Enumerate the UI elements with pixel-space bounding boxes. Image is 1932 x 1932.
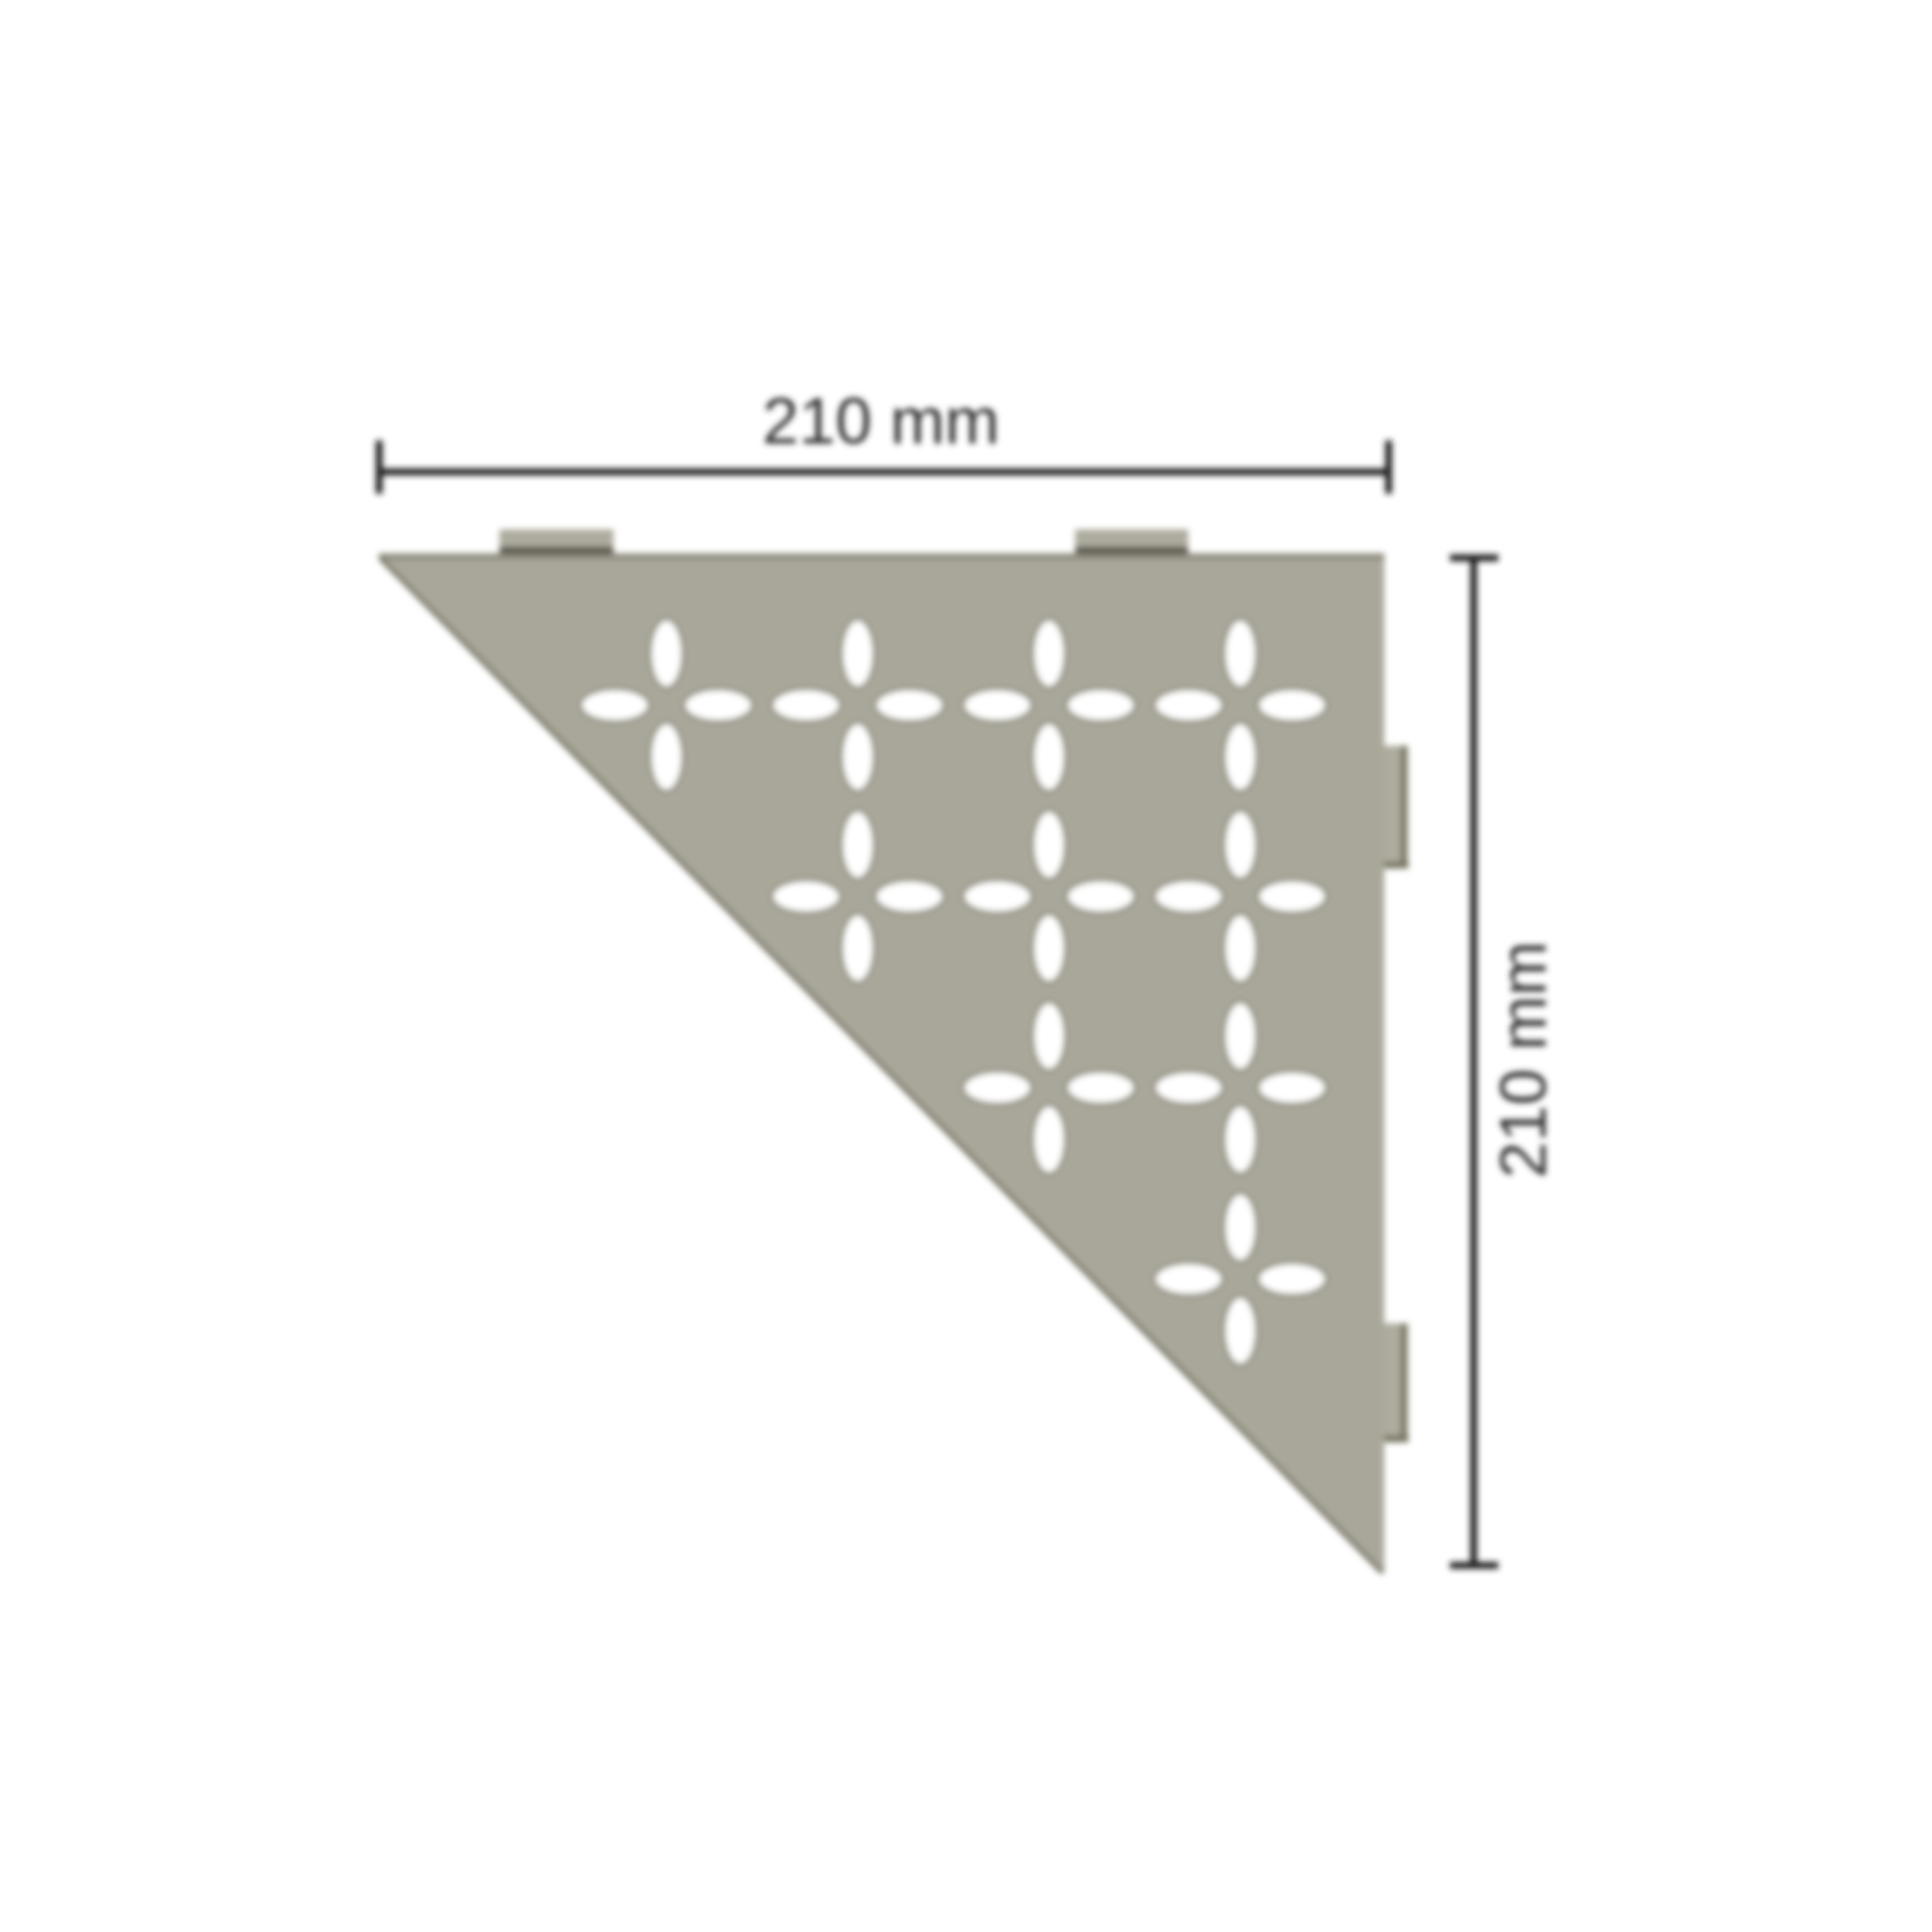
svg-text:210 mm: 210 mm <box>1487 941 1560 1179</box>
svg-text:210 mm: 210 mm <box>762 384 1000 458</box>
